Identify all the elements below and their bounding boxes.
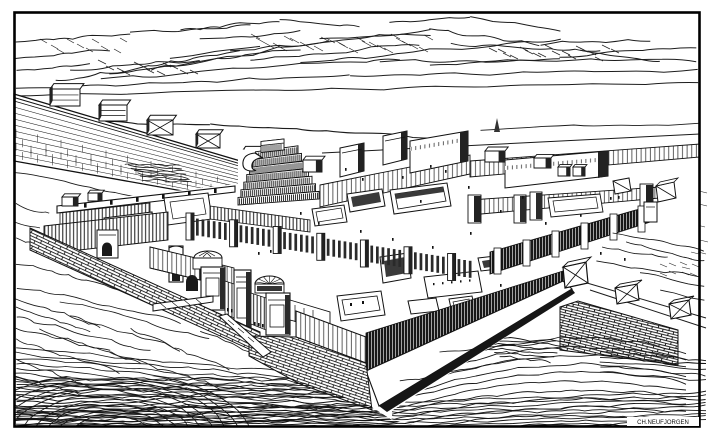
svg-text:CH.NEUFJORGEN: CH.NEUFJORGEN (637, 420, 689, 426)
